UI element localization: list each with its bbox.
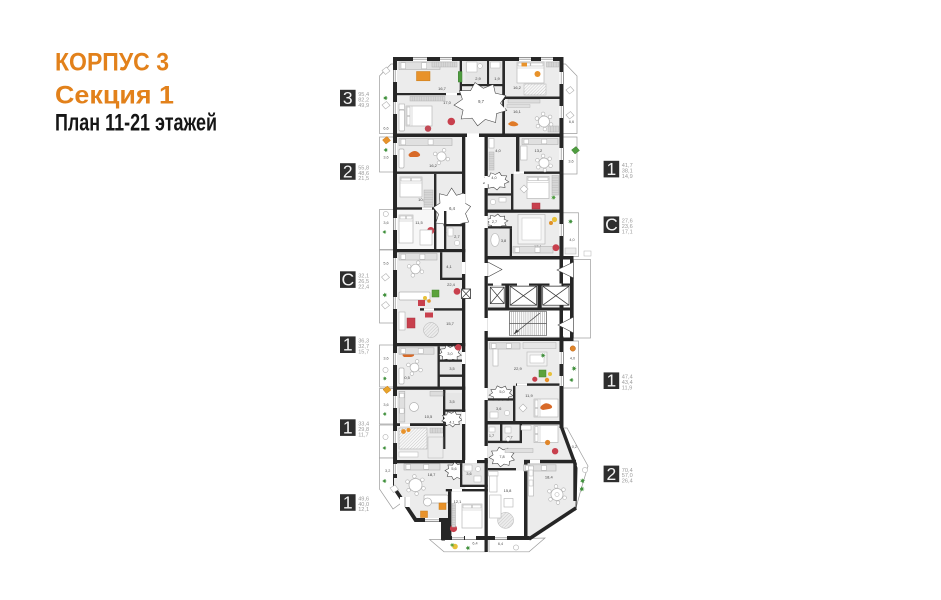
- svg-text:3,6: 3,6: [496, 407, 501, 411]
- svg-text:22,4: 22,4: [447, 282, 456, 287]
- svg-text:1: 1: [607, 371, 617, 391]
- svg-text:КОРПУС 3: КОРПУС 3: [55, 48, 169, 76]
- svg-text:4,0: 4,0: [569, 238, 574, 242]
- svg-text:1,7: 1,7: [489, 434, 494, 438]
- svg-text:5,0: 5,0: [499, 390, 504, 394]
- svg-text:17,1: 17,1: [622, 229, 633, 235]
- svg-text:3,0: 3,0: [447, 352, 452, 356]
- svg-text:11,5: 11,5: [415, 220, 423, 225]
- svg-text:6,4: 6,4: [498, 542, 503, 546]
- svg-text:3,5: 3,5: [449, 367, 454, 371]
- svg-text:18,7: 18,7: [428, 472, 437, 477]
- svg-text:16,2: 16,2: [513, 85, 522, 90]
- svg-text:2,7: 2,7: [492, 220, 497, 224]
- svg-text:3,8: 3,8: [501, 239, 506, 243]
- svg-text:4,1: 4,1: [449, 421, 454, 425]
- svg-text:3: 3: [343, 88, 353, 108]
- svg-text:21,5: 21,5: [358, 176, 369, 182]
- svg-text:2: 2: [607, 464, 617, 484]
- svg-text:9,7: 9,7: [478, 99, 484, 104]
- svg-text:С: С: [605, 215, 618, 235]
- svg-text:4,0: 4,0: [491, 176, 496, 180]
- svg-text:18,4: 18,4: [545, 475, 554, 480]
- svg-text:15,7: 15,7: [358, 349, 369, 355]
- svg-text:13,2: 13,2: [535, 148, 544, 153]
- svg-text:16,7: 16,7: [438, 86, 447, 91]
- svg-text:12,1: 12,1: [358, 507, 369, 513]
- svg-text:4,1: 4,1: [446, 264, 452, 269]
- svg-text:1: 1: [343, 335, 353, 355]
- svg-text:15,7: 15,7: [446, 321, 455, 326]
- svg-text:5,6: 5,6: [383, 262, 388, 266]
- svg-text:5,6: 5,6: [451, 467, 456, 471]
- svg-text:2,7: 2,7: [454, 234, 460, 239]
- svg-text:3,6: 3,6: [568, 160, 573, 164]
- svg-text:10,5: 10,5: [425, 414, 434, 419]
- svg-text:1: 1: [343, 418, 353, 438]
- svg-text:1: 1: [607, 159, 617, 179]
- svg-text:11,9: 11,9: [525, 393, 533, 398]
- svg-text:2: 2: [343, 161, 353, 181]
- svg-text:16,1: 16,1: [513, 109, 522, 114]
- svg-text:26,4: 26,4: [622, 479, 633, 485]
- svg-text:С: С: [341, 270, 354, 290]
- svg-text:Секция 1: Секция 1: [55, 81, 174, 109]
- svg-text:49,9: 49,9: [358, 103, 369, 109]
- svg-text:6,4: 6,4: [449, 206, 455, 211]
- svg-text:3,5: 3,5: [449, 400, 454, 404]
- svg-text:22,9: 22,9: [514, 366, 523, 371]
- svg-text:4,0: 4,0: [570, 357, 575, 361]
- svg-text:4,0: 4,0: [495, 148, 501, 153]
- svg-text:16,2: 16,2: [429, 163, 438, 168]
- svg-text:7,8: 7,8: [499, 455, 504, 459]
- svg-text:3,6: 3,6: [466, 472, 471, 476]
- svg-text:14,9: 14,9: [622, 174, 633, 180]
- svg-text:22,4: 22,4: [358, 284, 369, 290]
- svg-text:11,7: 11,7: [358, 432, 368, 438]
- svg-text:2,9: 2,9: [475, 76, 481, 81]
- svg-text:0,2: 0,2: [572, 445, 577, 449]
- svg-text:3,2: 3,2: [385, 469, 390, 473]
- svg-text:1,9: 1,9: [494, 76, 500, 81]
- svg-text:6,4: 6,4: [472, 542, 477, 546]
- svg-text:6,6: 6,6: [569, 120, 574, 124]
- svg-text:3,6: 3,6: [383, 156, 388, 160]
- svg-text:15,8: 15,8: [504, 488, 513, 493]
- svg-text:6,6: 6,6: [383, 127, 388, 131]
- svg-text:1: 1: [343, 492, 353, 512]
- svg-text:3,6: 3,6: [383, 357, 388, 361]
- svg-text:План 11-21 этажей: План 11-21 этажей: [55, 109, 217, 136]
- svg-text:11,9: 11,9: [622, 385, 632, 391]
- svg-text:3,6: 3,6: [383, 221, 388, 225]
- svg-text:3,6: 3,6: [383, 403, 388, 407]
